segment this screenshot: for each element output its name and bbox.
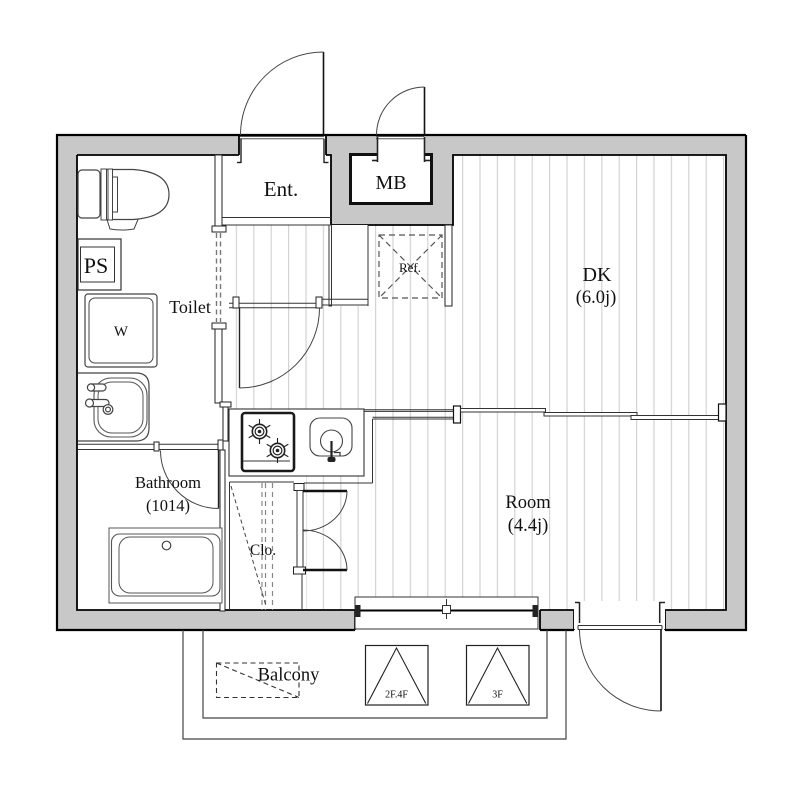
svg-text:Ent.: Ent. xyxy=(264,177,298,201)
svg-text:DK: DK xyxy=(583,264,612,286)
svg-text:PS: PS xyxy=(84,253,108,278)
svg-text:3F: 3F xyxy=(492,690,503,701)
svg-text:Toilet: Toilet xyxy=(169,297,211,317)
svg-text:Room: Room xyxy=(505,493,551,513)
svg-text:(4.4j): (4.4j) xyxy=(508,516,549,536)
svg-text:Clo.: Clo. xyxy=(250,542,276,559)
svg-text:Balcony: Balcony xyxy=(258,666,320,686)
svg-text:Bathroom: Bathroom xyxy=(135,473,201,492)
svg-text:(6.0j): (6.0j) xyxy=(576,288,617,308)
svg-text:(1014): (1014) xyxy=(146,496,190,515)
svg-text:Ref.: Ref. xyxy=(399,260,421,275)
svg-text:MB: MB xyxy=(375,172,406,194)
svg-text:W: W xyxy=(114,324,129,340)
svg-text:2F.4F: 2F.4F xyxy=(385,690,408,701)
